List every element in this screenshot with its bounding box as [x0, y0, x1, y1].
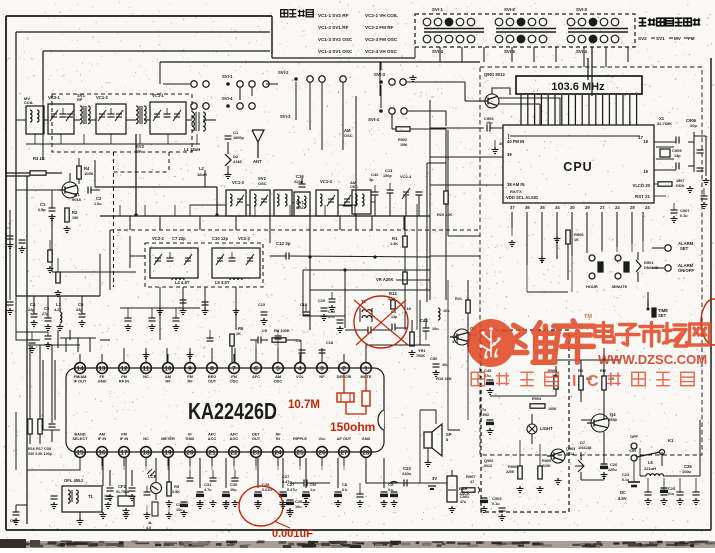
svg-text:VR A20K: VR A20K	[376, 277, 394, 282]
svg-text:C7 22p: C7 22p	[172, 236, 186, 241]
svg-text:3p: 3p	[369, 178, 374, 182]
svg-text:NC: NC	[143, 374, 149, 379]
svg-text:C15: C15	[258, 303, 265, 307]
svg-text:DC: DC	[620, 490, 626, 495]
svg-text:GND: GND	[186, 436, 195, 441]
svg-text:IF IN: IF IN	[120, 436, 129, 441]
svg-text:1800p: 1800p	[233, 136, 244, 140]
svg-text:20: 20	[186, 449, 194, 456]
svg-text:MV: MV	[674, 36, 682, 41]
svg-text:R5: R5	[174, 484, 180, 489]
svg-text:R906: R906	[508, 465, 517, 469]
svg-text:0.1u: 0.1u	[680, 214, 688, 218]
svg-text:R905: R905	[542, 459, 551, 463]
svg-text:37: 37	[510, 205, 515, 210]
svg-text:VDD SCL ALSIG: VDD SCL ALSIG	[506, 195, 538, 200]
svg-text:27: 27	[600, 205, 605, 210]
svg-text:LIGHT: LIGHT	[540, 426, 553, 431]
svg-text:16: 16	[98, 449, 106, 456]
svg-text:SVI-4: SVI-4	[368, 117, 380, 122]
svg-text:RM: RM	[600, 369, 606, 373]
svg-text:ACC: ACC	[208, 436, 217, 441]
svg-text:C8: C8	[342, 482, 348, 487]
svg-text:L5 3.5T: L5 3.5T	[215, 280, 230, 285]
svg-text:23: 23	[252, 449, 260, 456]
svg-text:VLCO 20: VLCO 20	[633, 183, 651, 188]
svg-text:13p: 13p	[674, 154, 681, 158]
svg-text:47u: 47u	[452, 340, 458, 344]
svg-text:100K: 100K	[548, 407, 557, 411]
svg-text:VC2-1: VC2-1	[48, 95, 61, 100]
svg-text:4.7u: 4.7u	[204, 488, 212, 492]
svg-text:NC: NC	[143, 436, 149, 441]
svg-text:32.768K: 32.768K	[657, 121, 672, 126]
svg-text:2: 2	[342, 365, 346, 372]
svg-text:RST 21: RST 21	[635, 194, 650, 199]
svg-text:1.0u: 1.0u	[94, 202, 102, 206]
svg-text:GND: GND	[98, 379, 107, 384]
svg-text:Q903: Q903	[566, 447, 575, 451]
svg-text:C13: C13	[385, 168, 393, 173]
svg-text:VC2-3 FM OSC: VC2-3 FM OSC	[365, 37, 398, 42]
svg-text:C30: C30	[230, 482, 238, 487]
svg-text:10u: 10u	[432, 327, 439, 331]
svg-text:1N4148: 1N4148	[578, 446, 591, 450]
svg-text:220u: 220u	[608, 468, 617, 472]
svg-text:K1: K1	[668, 438, 674, 443]
svg-text:26: 26	[318, 449, 326, 456]
svg-text:VC2-2 FM RF: VC2-2 FM RF	[365, 25, 394, 30]
svg-text:D901: D901	[644, 260, 654, 265]
svg-text:C905: C905	[672, 148, 682, 153]
svg-text:0.1u: 0.1u	[622, 478, 629, 482]
svg-text:C903: C903	[492, 496, 502, 501]
svg-text:RF: RF	[77, 97, 83, 102]
svg-text:R907: R907	[466, 474, 476, 479]
svg-text:T1: T1	[88, 494, 94, 499]
svg-text:IF OUT: IF OUT	[74, 379, 87, 384]
svg-text:IN: IN	[276, 436, 280, 441]
svg-text:17: 17	[120, 449, 128, 456]
svg-text:OUT: OUT	[208, 379, 217, 384]
svg-text:R14: R14	[389, 291, 397, 296]
svg-text:LCB: LCB	[148, 474, 157, 479]
svg-text:RIPPLE: RIPPLE	[293, 436, 307, 441]
svg-text:AFC: AFC	[252, 374, 260, 379]
svg-text:SVI-4: SVI-4	[222, 96, 233, 101]
svg-text:100K: 100K	[84, 171, 94, 176]
svg-text:MINUTE: MINUTE	[612, 284, 628, 289]
svg-text:34: 34	[555, 205, 560, 210]
svg-text:SVI-1: SVI-1	[222, 74, 233, 79]
svg-text:SVI-2: SVI-2	[278, 70, 289, 75]
svg-text:18: 18	[643, 139, 648, 144]
svg-text:DDK: DDK	[676, 184, 684, 188]
svg-text:47u: 47u	[480, 408, 486, 412]
svg-text:15p: 15p	[486, 121, 493, 125]
svg-text:11: 11	[143, 365, 150, 372]
svg-text:OFF: OFF	[630, 434, 639, 439]
svg-text:28: 28	[362, 449, 370, 456]
svg-text:CPU: CPU	[563, 160, 592, 174]
svg-text:VC2-4: VC2-4	[400, 174, 412, 179]
svg-text:SVI-5: SVI-5	[504, 49, 516, 54]
svg-text:C31: C31	[204, 482, 212, 487]
svg-text:C902: C902	[480, 413, 489, 417]
svg-text:40 FM IN: 40 FM IN	[507, 139, 524, 144]
svg-text:SV1: SV1	[656, 36, 665, 41]
svg-text:VC2-3: VC2-3	[238, 236, 251, 241]
svg-text:SELECT: SELECT	[72, 436, 88, 441]
svg-text:GND: GND	[362, 436, 371, 441]
svg-text:0.001uF: 0.001uF	[272, 528, 313, 540]
svg-text:3V: 3V	[432, 476, 437, 481]
svg-text:C20: C20	[610, 462, 618, 467]
svg-text:10u: 10u	[443, 309, 450, 313]
svg-text:C3: C3	[296, 339, 301, 343]
svg-text:YR1: YR1	[418, 348, 427, 353]
svg-text:R904: R904	[532, 397, 542, 401]
svg-text:VC2-4 VH OSC: VC2-4 VH OSC	[365, 49, 398, 54]
svg-text:47u: 47u	[328, 315, 335, 319]
svg-text:47u: 47u	[460, 500, 466, 504]
svg-text:35: 35	[540, 205, 545, 210]
svg-text:SET: SET	[658, 313, 667, 318]
svg-text:8550: 8550	[608, 417, 618, 422]
svg-text:4: 4	[298, 365, 302, 372]
svg-text:OFL 455J: OFL 455J	[64, 478, 83, 483]
svg-text:3: 3	[320, 365, 324, 372]
svg-text:VC2-2: VC2-2	[152, 236, 165, 241]
svg-text:1.u: 1.u	[310, 488, 316, 492]
svg-text:TM: TM	[584, 314, 592, 320]
svg-text:VOL: VOL	[296, 374, 305, 379]
svg-text:C12 3p: C12 3p	[276, 241, 291, 246]
svg-text:RF: RF	[187, 379, 193, 384]
svg-text:Vcc: Vcc	[319, 436, 327, 441]
svg-text:COIL: COIL	[24, 101, 34, 105]
svg-text:20p: 20p	[690, 123, 697, 128]
svg-text:C27: C27	[282, 474, 290, 479]
svg-text:12: 12	[120, 365, 128, 372]
svg-text:1.3K: 1.3K	[390, 242, 398, 246]
svg-text:10u: 10u	[176, 508, 183, 512]
svg-text:10u: 10u	[295, 505, 302, 509]
svg-text:220K: 220K	[506, 470, 515, 474]
svg-text:R20 10K: R20 10K	[437, 212, 453, 217]
svg-text:WWW.DZSC.COM: WWW.DZSC.COM	[598, 352, 707, 367]
svg-text:19: 19	[643, 169, 648, 174]
svg-text:29: 29	[585, 205, 590, 210]
svg-text:9014: 9014	[566, 452, 574, 456]
svg-text:150ohm: 150ohm	[330, 420, 375, 434]
svg-text:OSC: OSC	[230, 379, 239, 384]
svg-text:0.47u: 0.47u	[287, 488, 297, 492]
svg-text:SV2: SV2	[638, 36, 647, 41]
svg-text:38 AM IN: 38 AM IN	[507, 182, 525, 187]
svg-text:10u: 10u	[230, 488, 237, 492]
svg-text:700K: 700K	[416, 354, 425, 358]
svg-text:330 3.3K 100p: 330 3.3K 100p	[28, 452, 53, 456]
svg-text:C14: C14	[452, 335, 460, 339]
svg-text:L4 4.5T: L4 4.5T	[175, 280, 190, 285]
svg-text:I: I	[572, 373, 576, 390]
svg-text:6.8p: 6.8p	[38, 208, 46, 212]
svg-text:C2: C2	[96, 196, 102, 201]
svg-text:10: 10	[164, 365, 172, 372]
svg-text:9018: 9018	[72, 197, 82, 202]
svg-text:47: 47	[470, 480, 474, 484]
svg-text:ANT: ANT	[253, 159, 262, 164]
svg-text:6: 6	[254, 365, 258, 372]
svg-text:13p: 13p	[391, 315, 398, 319]
svg-text:NF: NF	[319, 374, 325, 379]
svg-text:R18 10K: R18 10K	[436, 376, 452, 381]
svg-text:R21: R21	[455, 297, 462, 301]
svg-text:221uH: 221uH	[644, 466, 656, 471]
svg-text:Q902: Q902	[484, 459, 493, 463]
svg-text:SVI-2: SVI-2	[504, 7, 516, 12]
svg-text:39: 39	[507, 152, 512, 157]
svg-text:OSC: OSC	[344, 133, 353, 138]
svg-text:100u: 100u	[682, 469, 692, 474]
svg-text:OSC: OSC	[258, 181, 267, 186]
svg-text:C50: C50	[430, 356, 438, 361]
svg-text:C42: C42	[371, 172, 379, 177]
svg-text:CF2: CF2	[118, 484, 127, 489]
svg-text:21: 21	[208, 449, 216, 456]
svg-text:24: 24	[274, 449, 282, 456]
svg-text:R1: R1	[392, 236, 398, 241]
svg-text:10.7M: 10.7M	[288, 399, 320, 411]
svg-text:R16 R17 C35: R16 R17 C35	[28, 447, 51, 451]
svg-text:L3: L3	[56, 302, 62, 307]
svg-text:METER: METER	[161, 436, 175, 441]
svg-text:L2: L2	[199, 166, 205, 171]
svg-text:AGC: AGC	[230, 436, 239, 441]
svg-text:R2: R2	[72, 210, 78, 215]
svg-text:VC1-4: VC1-4	[320, 179, 333, 184]
svg-text:220u: 220u	[402, 471, 412, 476]
svg-text:VC2-1 VH COIL: VC2-1 VH COIL	[365, 13, 398, 18]
svg-text:4148: 4148	[233, 160, 241, 164]
svg-text:OSC: OSC	[350, 185, 358, 189]
svg-text:18: 18	[142, 449, 150, 456]
svg-text:4.0: 4.0	[146, 526, 151, 530]
svg-text:VC1-3: VC1-3	[232, 180, 245, 185]
svg-text:01u: 01u	[668, 492, 674, 496]
svg-text:C5: C5	[44, 306, 50, 311]
svg-text:36: 36	[525, 205, 530, 210]
svg-text:220K: 220K	[542, 464, 551, 468]
svg-text:C9: C9	[262, 328, 268, 333]
svg-text:RX/TX: RX/TX	[510, 189, 522, 194]
svg-text:13: 13	[98, 365, 106, 372]
svg-text:9013: 9013	[484, 464, 492, 468]
svg-text:VC1-1 SV2 RF: VC1-1 SV2 RF	[318, 13, 349, 18]
svg-text:5: 5	[276, 365, 280, 372]
svg-text:C44: C44	[420, 318, 428, 323]
svg-text:C29: C29	[295, 499, 303, 504]
svg-text:1K: 1K	[574, 238, 579, 242]
svg-text:C18: C18	[326, 341, 333, 345]
svg-text:SVI-3: SVI-3	[576, 7, 588, 12]
svg-text:L6: L6	[648, 460, 654, 465]
svg-text:C19: C19	[318, 299, 325, 303]
svg-text:C907: C907	[680, 208, 690, 213]
svg-text:SET: SET	[680, 246, 689, 251]
svg-text:4.2T: 4.2T	[54, 308, 62, 312]
svg-text:C6: C6	[78, 302, 84, 307]
svg-text:SL7WA: SL7WA	[116, 490, 129, 494]
svg-text:R906: R906	[574, 232, 584, 237]
svg-text:C25: C25	[668, 487, 675, 491]
svg-text:30: 30	[570, 205, 575, 210]
svg-text:SVI-4: SVI-4	[432, 49, 444, 54]
svg-text:25: 25	[296, 449, 304, 456]
svg-text:R6: R6	[238, 326, 244, 331]
svg-text:4L: 4L	[148, 521, 153, 525]
svg-text:AF OUT: AF OUT	[337, 436, 352, 441]
svg-text:15: 15	[76, 449, 84, 456]
svg-text:150p: 150p	[383, 174, 392, 178]
svg-text:10M: 10M	[400, 143, 407, 147]
svg-text:3.9K: 3.9K	[172, 490, 180, 494]
svg-text:19: 19	[164, 449, 172, 456]
svg-text:25: 25	[630, 205, 635, 210]
svg-text:OUT: OUT	[252, 436, 261, 441]
svg-text:1: 1	[364, 365, 368, 372]
svg-text:KA22426D: KA22426D	[188, 398, 277, 424]
svg-text:ON: ON	[630, 448, 636, 453]
svg-text:103.6 MHz: 103.6 MHz	[551, 81, 605, 93]
svg-text:OSC: OSC	[274, 379, 283, 384]
svg-text:8: 8	[210, 365, 214, 372]
svg-text:1K: 1K	[236, 332, 241, 336]
svg-text:7: 7	[232, 365, 236, 372]
svg-text:R8 100K: R8 100K	[274, 328, 290, 333]
svg-text:27: 27	[340, 449, 348, 456]
svg-text:HOUR: HOUR	[586, 284, 598, 289]
svg-text:R002: R002	[398, 138, 407, 142]
svg-text:C1: C1	[40, 202, 46, 207]
svg-text:C24: C24	[622, 473, 630, 477]
svg-text:ON/OFF: ON/OFF	[678, 268, 694, 273]
svg-text:C: C	[587, 373, 599, 390]
svg-text:24: 24	[615, 205, 620, 210]
svg-text:4.5V: 4.5V	[618, 496, 627, 501]
svg-text:24: 24	[645, 205, 650, 210]
svg-text:0.1u: 0.1u	[492, 502, 500, 506]
svg-text:9: 9	[188, 365, 192, 372]
svg-text:150: 150	[72, 216, 78, 220]
svg-text:C1: C1	[233, 130, 239, 135]
svg-text:RF IN: RF IN	[119, 379, 129, 384]
svg-text:D2: D2	[233, 154, 239, 159]
svg-text:SVI-4: SVI-4	[576, 49, 588, 54]
svg-text:22: 22	[230, 449, 238, 456]
svg-text:SVI-3: SVI-3	[280, 114, 291, 119]
svg-text:VC1-4 SV1 OSC: VC1-4 SV1 OSC	[318, 49, 353, 54]
svg-text:C901: C901	[460, 495, 469, 499]
svg-text:VC1-2: VC1-2	[96, 95, 109, 100]
svg-text:39: 39	[499, 142, 503, 146]
svg-text:1807: 1807	[676, 179, 684, 183]
svg-text:VC1-3 SV2 OSC: VC1-3 SV2 OSC	[318, 37, 353, 42]
svg-text:D7: D7	[580, 440, 586, 445]
svg-text:VC1-2 SV1 RF: VC1-2 SV1 RF	[318, 25, 349, 30]
svg-text:C10 12p: C10 12p	[212, 236, 229, 241]
svg-text:6.u: 6.u	[342, 488, 348, 492]
svg-text:Q901 9013: Q901 9013	[484, 72, 505, 77]
svg-text:FM: FM	[688, 36, 695, 41]
svg-text:RF: RF	[165, 379, 171, 384]
svg-text:SVI-1: SVI-1	[432, 7, 444, 12]
svg-text:IF IN: IF IN	[98, 436, 107, 441]
svg-text:14: 14	[76, 365, 84, 372]
svg-text:C4: C4	[30, 302, 36, 307]
